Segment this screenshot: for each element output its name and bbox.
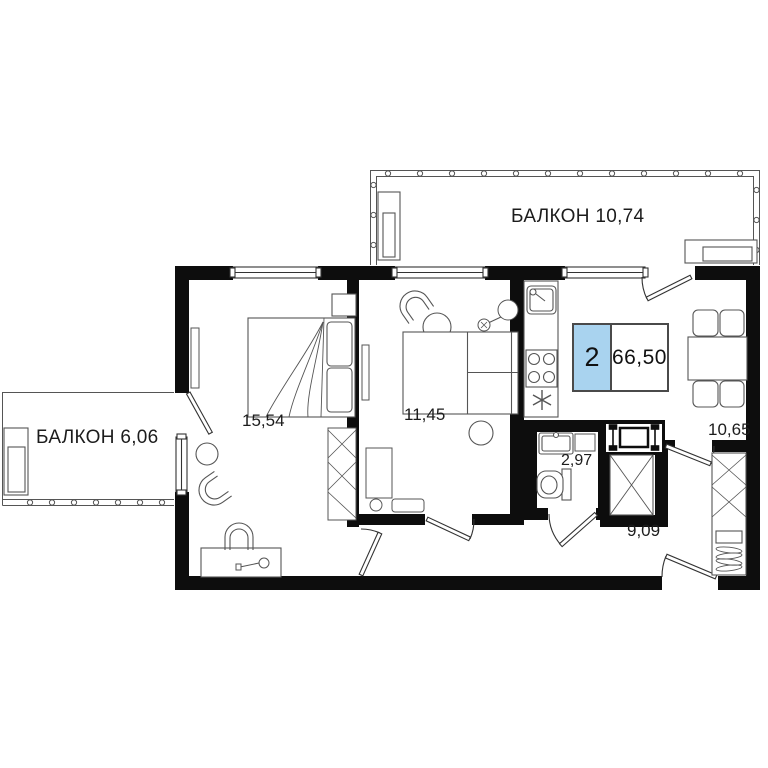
floor-plan: БАЛКОН 10,74 БАЛКОН 6,06 15,54 11,45 2,9… <box>0 0 768 768</box>
pouf-bedroom <box>196 443 218 465</box>
dining-area-label: 10,65 <box>708 420 751 440</box>
pillow <box>327 322 352 366</box>
stool <box>370 499 382 511</box>
window-top-bedroom <box>230 267 321 278</box>
living-radiator <box>362 345 369 400</box>
media-console <box>392 499 424 512</box>
shower-cabin <box>610 455 653 515</box>
balcony-top-label: БАЛКОН 10,74 <box>511 206 644 228</box>
living-room-door <box>426 517 474 540</box>
hallway-area-label: 9,09 <box>627 521 660 541</box>
window-top-living <box>392 267 488 278</box>
balcony-left-bench <box>4 428 28 495</box>
window-top-kitchen <box>562 267 648 278</box>
hallway-dining-door <box>665 444 714 466</box>
bathroom-sink <box>539 433 573 455</box>
bedroom-door <box>359 529 382 576</box>
bathroom-door <box>549 513 597 547</box>
unit-info-badge: 2 66,50 <box>572 323 669 392</box>
bedroom-area-label: 15,54 <box>242 411 285 431</box>
desk-chair <box>225 523 253 550</box>
window-left-balcony <box>176 434 187 495</box>
bathroom-counter <box>575 434 595 451</box>
vent-shaft <box>606 424 662 452</box>
sofa <box>403 332 518 414</box>
pouf-living <box>469 421 493 445</box>
pillow <box>327 368 352 412</box>
entrance-door <box>662 554 717 579</box>
stove <box>526 350 557 387</box>
bedroom-wardrobe <box>328 428 356 520</box>
dining-balcony-door <box>642 275 692 301</box>
dining-table <box>688 337 747 380</box>
wardrobe-shelf <box>716 531 742 543</box>
balcony-left-label: БАЛКОН 6,06 <box>36 427 159 449</box>
nightstand <box>332 294 356 316</box>
tv-cabinet <box>366 448 392 498</box>
bedroom-balcony-door <box>187 392 213 434</box>
total-area-value: 66,50 <box>612 325 667 390</box>
room-count-badge: 2 <box>574 325 612 390</box>
living-area-label: 11,45 <box>404 405 445 425</box>
bed <box>248 318 355 417</box>
toilet <box>537 469 571 500</box>
kitchen-sink <box>527 286 556 314</box>
entry-wardrobe <box>712 453 746 575</box>
bathroom-area-label: 2,97 <box>561 452 592 470</box>
balcony-top-bench <box>685 240 757 263</box>
balcony-top-planter <box>378 192 400 260</box>
bedroom-radiator <box>191 328 199 388</box>
armchair-bedroom <box>193 471 232 510</box>
